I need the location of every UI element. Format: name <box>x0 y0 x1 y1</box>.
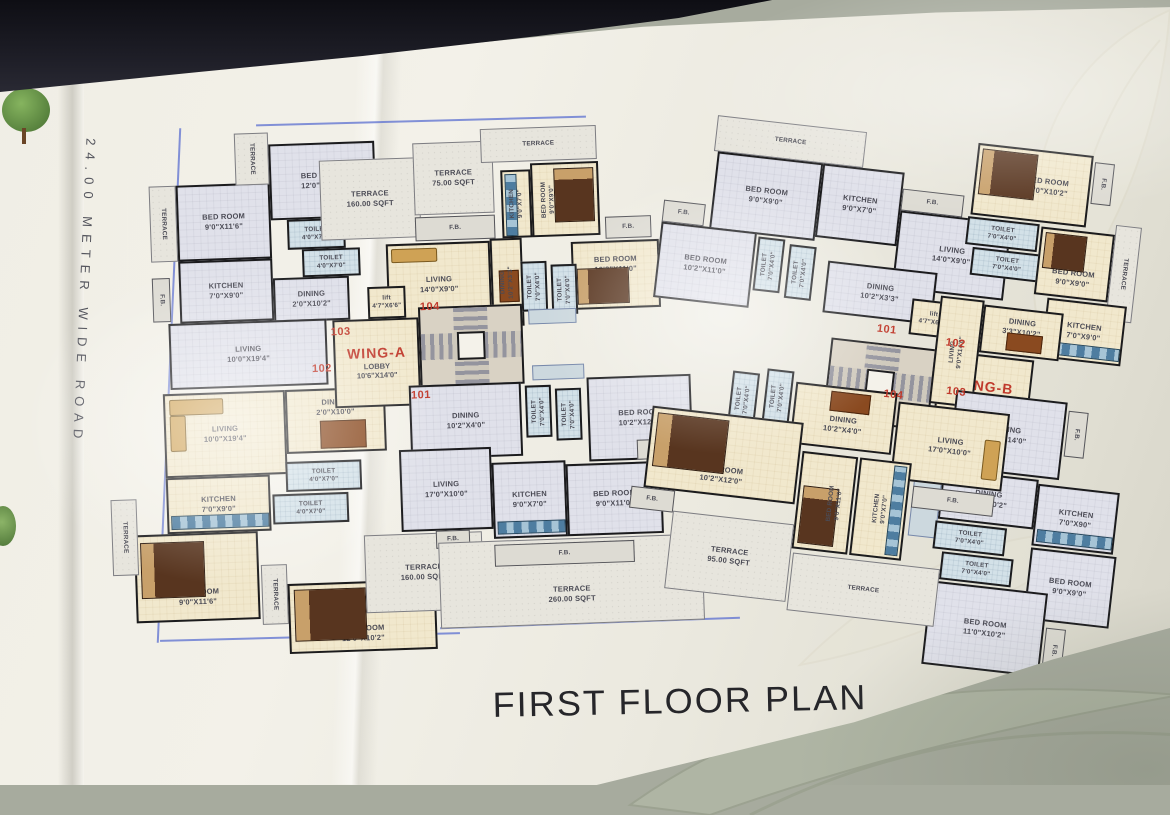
kitchen-counter-icon <box>497 519 565 534</box>
shrub-icon <box>0 506 16 546</box>
kitchen-counter-icon <box>171 513 269 530</box>
flower-bed: F.B. <box>605 215 652 239</box>
terrace: TERRACE <box>261 564 289 625</box>
unit-number: 102 <box>312 362 332 375</box>
signage-plate <box>528 308 576 325</box>
sofa-icon <box>391 248 437 264</box>
unit-number: 102 <box>945 336 966 350</box>
dining-room: DINING 2'0"X10'2" <box>273 276 350 323</box>
bedroom: BED ROOM 9'0"X9'0" <box>1034 227 1115 303</box>
bed-icon <box>553 167 595 222</box>
bedroom: BED ROOM 9'0"X9'0" <box>709 151 823 240</box>
wing-b: TERRACE BED ROOM 9'0"X9'0" KITCHEN 9'0"X… <box>614 104 1168 697</box>
toilet: TOILET 7'0"X4'0" <box>784 244 817 301</box>
kitchen: KITCHEN 9'0"X7'0" <box>500 169 532 238</box>
tree-icon <box>2 88 50 132</box>
terrace: TERRACE <box>234 132 270 185</box>
bedroom: BED ROOM 11'0"X10'2" <box>921 580 1048 677</box>
sofa-icon <box>169 398 224 416</box>
kitchen: KITCHEN 9'0"X7'0" <box>815 163 905 246</box>
bedroom: BED ROOM 9'0"X11'0" <box>791 451 858 555</box>
flower-bed: F.B. <box>1064 411 1089 459</box>
page-title: FIRST FLOOR PLAN <box>422 677 938 728</box>
toilet: TOILET 4'0"X7'0" <box>302 247 361 277</box>
kitchen: KITCHEN 7'0"X90" <box>1031 484 1119 555</box>
kitchen: KITCHEN 7'0"X9'0" <box>178 258 274 323</box>
signage-plate <box>532 364 584 381</box>
bedroom: BED ROOM 9'0"X11'6" <box>134 531 261 623</box>
brochure-page: 24.00 METER WIDE ROAD TERRACE BED ROOM 9… <box>0 0 1170 785</box>
unit-number: 104 <box>883 388 904 402</box>
terrace: TERRACE <box>149 186 179 263</box>
bedroom: BED ROOM 10'2"X11'0" <box>653 221 757 307</box>
bedroom: BED ROOM 11'0"X10'2" <box>970 143 1093 228</box>
toilet: TOILET 4'0"X7'0" <box>272 492 349 525</box>
terrace: TERRACE <box>480 125 597 163</box>
terrace: TERRACE <box>786 552 940 626</box>
toilet: TOILET 7'0"X4'0" <box>520 261 548 312</box>
tree-trunk-icon <box>22 128 26 144</box>
kitchen: KITCHEN 9'0"X7'0" <box>491 460 568 539</box>
kitchen: KITCHEN 7'0"X9'0" <box>166 475 272 535</box>
flower-bed: F.B. <box>629 486 675 513</box>
floor-plan: TERRACE BED ROOM 9'0"X11'6" TERRACE BED … <box>77 83 1170 643</box>
dining-table-icon <box>320 419 367 449</box>
living-room: LIVING 10'0"X19'4" <box>168 319 328 390</box>
kitchen: KITCHEN 9'0"X7'0" <box>849 457 912 560</box>
bed-icon <box>978 148 1039 200</box>
toilet: TOILET 4'0"X7'0" <box>285 459 362 492</box>
unit-number: 101 <box>411 389 431 402</box>
living-room: LIVING 10'0"X19'4" <box>163 390 288 478</box>
unit-number: 104 <box>420 301 440 314</box>
toilet: TOILET 7'0"X4'0" <box>752 237 785 294</box>
bedroom: BED ROOM 9'0"X11'6" <box>176 182 273 261</box>
stair-landing <box>457 331 486 360</box>
terrace: TERRACE 160.00 SQFT <box>319 157 422 240</box>
bed-icon <box>140 541 206 599</box>
lobby-label: LOBBY 10'6"X14'0" <box>356 361 397 382</box>
wing-name: WING-A <box>347 344 406 363</box>
dining-table-icon <box>1005 332 1043 354</box>
bed-icon <box>294 587 368 641</box>
toilet: TOILET 7'0"X4'0" <box>525 385 553 438</box>
dining-table-icon <box>829 391 871 415</box>
stairs <box>418 304 525 388</box>
sofa-icon <box>981 439 1001 481</box>
toilet: TOILET 7'0"X4'0" <box>555 388 583 441</box>
terrace: TERRACE <box>110 499 139 576</box>
wing-a: TERRACE BED ROOM 9'0"X11'6" TERRACE BED … <box>78 108 707 634</box>
bed-icon <box>652 412 730 474</box>
bedroom: BED ROOM 10'2"X11'0" <box>571 239 661 310</box>
flower-bed: F.B. <box>1090 162 1115 206</box>
dining-room: DINING 10'2"X4'0" <box>789 382 897 455</box>
kitchen-counter-icon <box>1036 529 1113 551</box>
lift: lift 4'7"X6'6" <box>367 286 406 319</box>
unit-number: 103 <box>946 385 967 399</box>
unit-number: 101 <box>876 323 897 337</box>
unit-number: 103 <box>331 326 351 339</box>
flower-bed: F.B. <box>152 278 172 323</box>
dining-room: DINING 3'3"X10'2" <box>979 305 1064 362</box>
bedroom: BED ROOM 9'0"X9'0" <box>530 161 601 237</box>
terrace: TERRACE 95.00 SQFT <box>664 511 794 602</box>
bed-icon <box>577 267 630 305</box>
bed-icon <box>1042 232 1088 273</box>
sofa-icon <box>170 416 187 453</box>
living-room: LIVING 17'0"X10'0" <box>399 447 494 532</box>
flower-bed: F.B. <box>415 215 496 242</box>
toilet: TOILET 7'0"X4'0" <box>762 368 795 425</box>
